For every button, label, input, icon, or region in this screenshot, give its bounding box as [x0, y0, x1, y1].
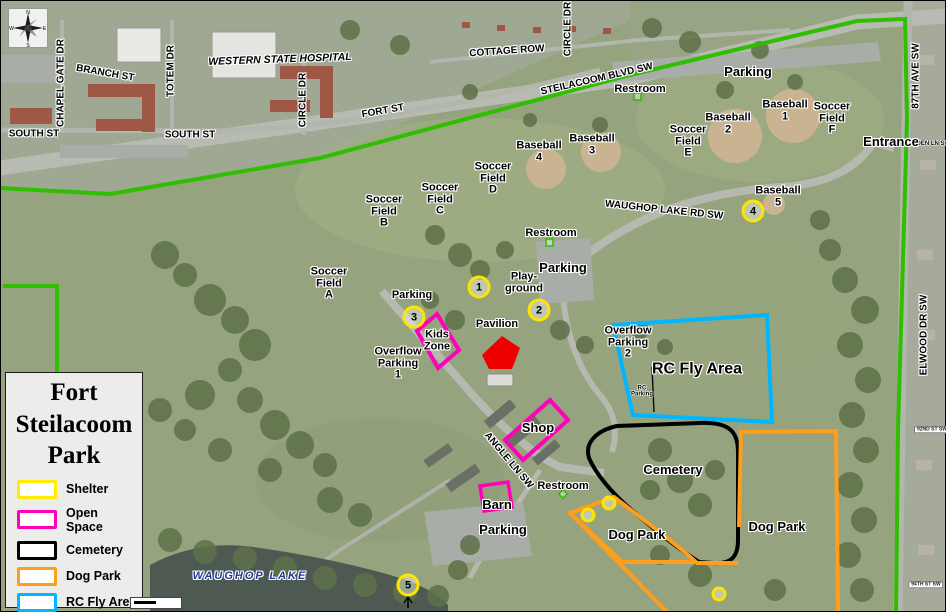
shelter-marker-small-2 [602, 496, 617, 511]
legend-label: Open Space [66, 506, 137, 534]
compass-west-label: W [9, 26, 14, 32]
shelter-marker-3: 3 [403, 306, 426, 329]
legend-item-cemetery: Cemetery [17, 541, 137, 560]
shelter-marker-2: 2 [528, 299, 551, 322]
legend-label: RC Fly Area [66, 595, 136, 609]
shelter-marker-small-1 [581, 508, 596, 523]
compass-rose: N E S W [8, 8, 48, 48]
legend-item-shelter: Shelter [17, 480, 137, 499]
compass-east-label: E [43, 26, 47, 32]
legend-swatch [17, 480, 57, 499]
legend-label: Dog Park [66, 569, 121, 583]
shelter-marker-1: 1 [468, 276, 491, 299]
legend-swatch [17, 541, 57, 560]
legend-label: Shelter [66, 482, 108, 496]
legend-swatch [17, 593, 57, 612]
compass-south-label: S [26, 43, 30, 47]
legend-item-rc-fly-area: RC Fly Area [17, 593, 137, 612]
legend-swatch [17, 510, 57, 529]
shelter-marker-small-3 [712, 587, 727, 602]
title-legend-box: Fort Steilacoom Park ShelterOpen SpaceCe… [5, 372, 143, 608]
shelter-marker-5: 5 [397, 574, 420, 597]
scale-bar [130, 597, 182, 609]
legend-label: Cemetery [66, 543, 123, 557]
shelter-marker-4: 4 [742, 200, 765, 223]
legend-item-open-space: Open Space [17, 506, 137, 534]
legend-item-dog-park: Dog Park [17, 567, 137, 586]
park-map: WESTERN STATE HOSPITALBRANCH STCHAPEL GA… [0, 0, 946, 612]
legend-list: ShelterOpen SpaceCemeteryDog ParkRC Fly … [17, 480, 137, 612]
park-title: Fort Steilacoom Park [11, 377, 137, 472]
compass-north-label: N [26, 10, 30, 16]
legend-swatch [17, 567, 57, 586]
